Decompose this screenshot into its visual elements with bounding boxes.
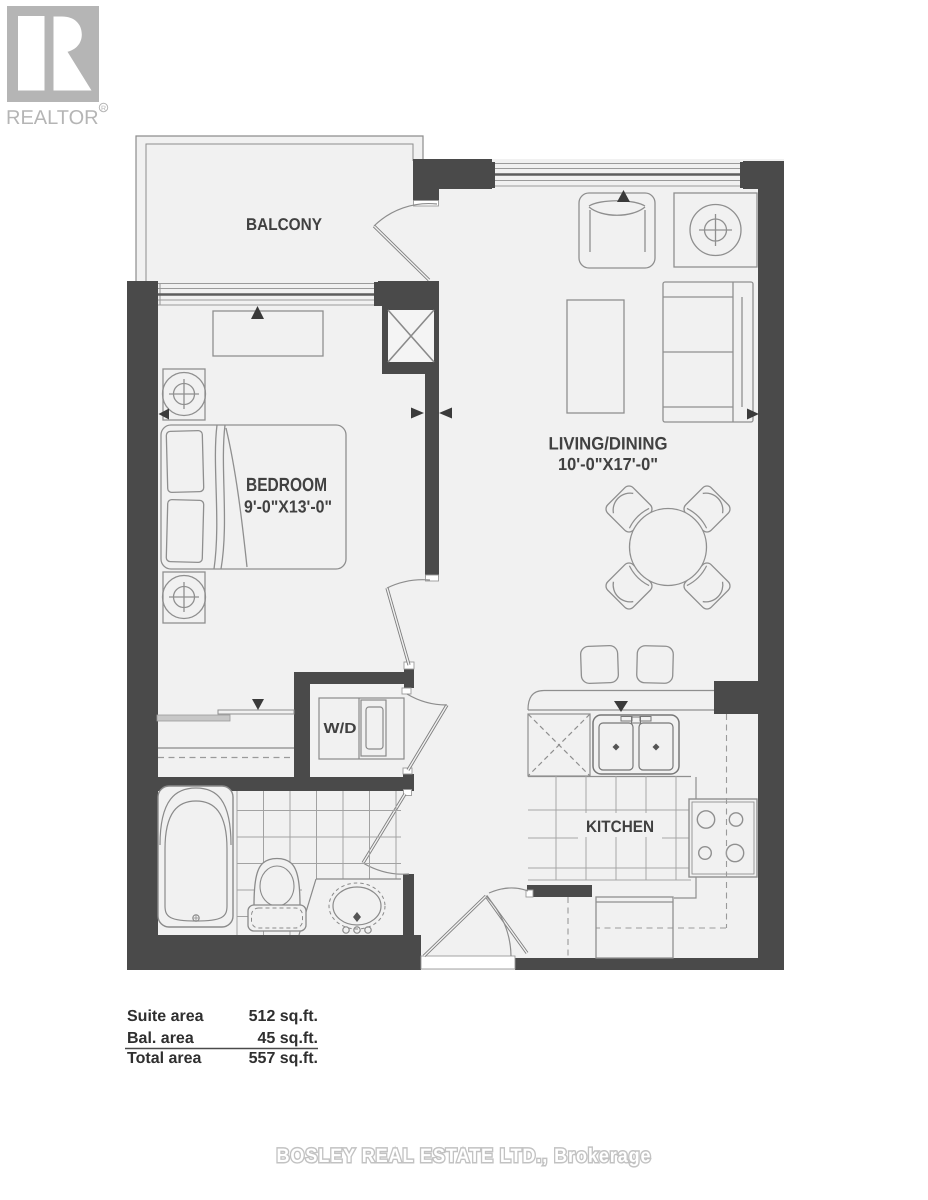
- svg-text:512 sq.ft.: 512 sq.ft.: [249, 1008, 318, 1025]
- svg-text:10'-0"X17'-0": 10'-0"X17'-0": [558, 454, 658, 474]
- svg-text:REALTOR: REALTOR: [6, 107, 99, 129]
- svg-text:BOSLEY REAL ESTATE LTD., Broke: BOSLEY REAL ESTATE LTD., Brokerage: [277, 1145, 652, 1167]
- svg-text:45 sq.ft.: 45 sq.ft.: [258, 1030, 318, 1047]
- svg-text:BALCONY: BALCONY: [246, 215, 323, 234]
- svg-text:LIVING/DINING: LIVING/DINING: [549, 434, 668, 454]
- svg-text:557 sq.ft.: 557 sq.ft.: [249, 1050, 318, 1067]
- svg-text:BEDROOM: BEDROOM: [246, 475, 327, 496]
- svg-text:Bal. area: Bal. area: [127, 1030, 194, 1047]
- svg-text:KITCHEN: KITCHEN: [586, 818, 654, 836]
- svg-text:9'-0"X13'-0": 9'-0"X13'-0": [244, 497, 332, 517]
- svg-text:Suite area: Suite area: [127, 1008, 204, 1025]
- svg-text:Total area: Total area: [127, 1050, 202, 1067]
- svg-text:W/D: W/D: [324, 721, 357, 737]
- svg-text:R: R: [101, 106, 106, 113]
